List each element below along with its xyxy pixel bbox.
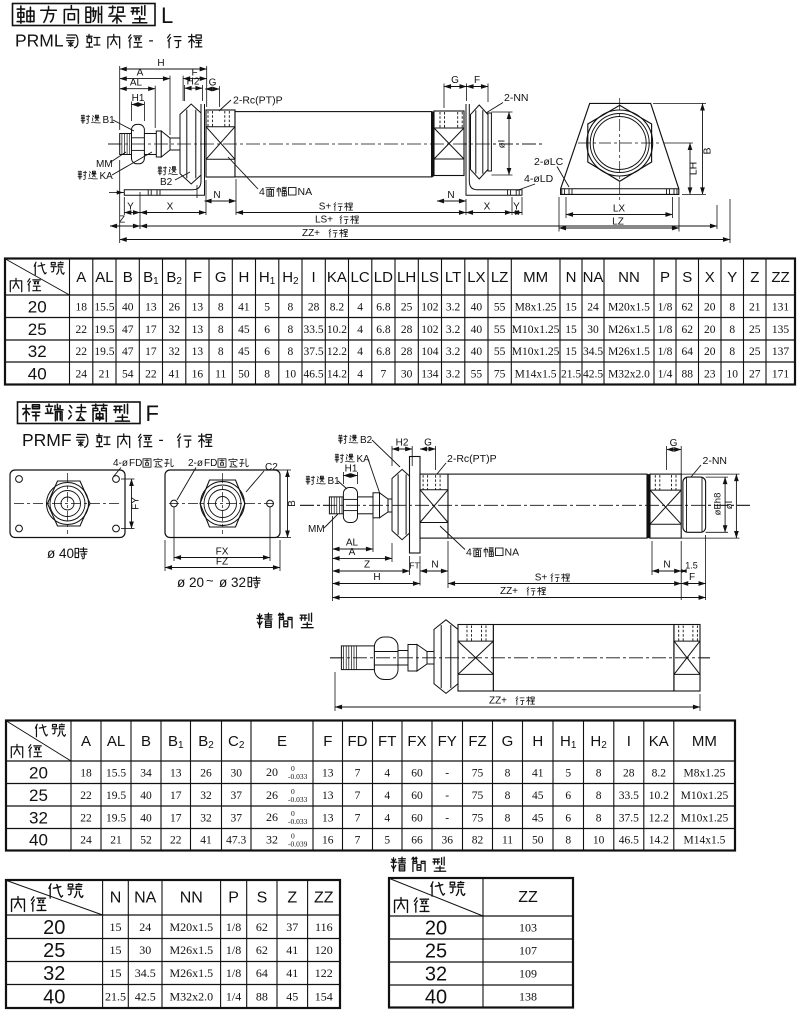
svg-text:45: 45	[532, 790, 544, 802]
svg-text:NN: NN	[618, 269, 640, 286]
svg-text:MM: MM	[96, 159, 113, 170]
svg-text:26: 26	[168, 301, 180, 313]
svg-text:M10x1.25: M10x1.25	[681, 790, 729, 802]
svg-text:G: G	[502, 733, 514, 750]
svg-text:1/8: 1/8	[226, 966, 241, 980]
svg-text:E: E	[277, 733, 287, 750]
svg-text:19.5: 19.5	[94, 346, 114, 358]
svg-text:F: F	[689, 572, 695, 583]
svg-text:62: 62	[681, 301, 693, 313]
svg-text:41: 41	[200, 835, 212, 847]
svg-text:M32x2.0: M32x2.0	[608, 368, 650, 380]
svg-text:46.5: 46.5	[304, 368, 324, 380]
svg-text:4: 4	[384, 812, 390, 824]
svg-text:24: 24	[587, 301, 599, 313]
svg-text:21: 21	[749, 301, 761, 313]
svg-text:ø 40: ø 40	[47, 546, 74, 561]
svg-text:H2: H2	[187, 77, 200, 88]
svg-text:M10x1.25: M10x1.25	[512, 346, 560, 358]
svg-text:øI: øI	[724, 501, 735, 509]
svg-text:8: 8	[596, 790, 602, 802]
svg-text:60: 60	[411, 767, 423, 779]
svg-text:40: 40	[471, 301, 483, 313]
svg-text:-: -	[445, 812, 449, 824]
svg-text:45: 45	[532, 812, 544, 824]
svg-text:A: A	[76, 269, 86, 286]
svg-text:5: 5	[264, 301, 270, 313]
svg-text:3.2: 3.2	[446, 324, 461, 336]
svg-text:22: 22	[75, 324, 87, 336]
svg-text:32: 32	[29, 808, 48, 827]
svg-text:H2: H2	[282, 269, 299, 287]
svg-text:30: 30	[401, 368, 413, 380]
svg-text:1/8: 1/8	[658, 324, 673, 336]
svg-text:H1: H1	[132, 93, 145, 104]
svg-text:19.5: 19.5	[106, 790, 126, 802]
svg-text:52: 52	[140, 835, 152, 847]
svg-text:8: 8	[288, 346, 294, 358]
svg-text:Y: Y	[513, 202, 520, 213]
svg-text:40: 40	[28, 364, 47, 383]
svg-text:12.2: 12.2	[327, 346, 347, 358]
svg-text:N: N	[663, 560, 670, 571]
svg-text:FY: FY	[438, 733, 457, 750]
svg-text:N: N	[431, 560, 438, 571]
svg-text:1/8: 1/8	[226, 943, 241, 957]
svg-text:40: 40	[43, 987, 65, 1009]
svg-text:109: 109	[519, 967, 537, 981]
svg-text:2-Rc(PT)P: 2-Rc(PT)P	[233, 95, 283, 107]
svg-text:C2: C2	[265, 462, 278, 473]
svg-text:H2: H2	[590, 733, 607, 751]
svg-text:34.5: 34.5	[135, 966, 156, 980]
svg-text:41: 41	[238, 301, 250, 313]
svg-text:28: 28	[623, 767, 635, 779]
svg-text:13: 13	[170, 767, 182, 779]
svg-text:75: 75	[472, 790, 484, 802]
svg-text:131: 131	[772, 301, 790, 313]
svg-text:MM: MM	[308, 524, 325, 535]
svg-text:88: 88	[256, 990, 268, 1004]
svg-text:6: 6	[565, 812, 571, 824]
svg-text:13: 13	[322, 790, 334, 802]
svg-text:FZ: FZ	[216, 557, 228, 568]
svg-text:8: 8	[729, 346, 735, 358]
svg-text:NA: NA	[298, 186, 313, 198]
svg-text:15: 15	[565, 301, 577, 313]
svg-text:3.2: 3.2	[446, 346, 461, 358]
svg-text:26: 26	[266, 788, 278, 802]
svg-text:Z: Z	[287, 890, 297, 907]
svg-text:8: 8	[288, 324, 294, 336]
svg-text:120: 120	[315, 943, 333, 957]
svg-text:8.2: 8.2	[330, 301, 345, 313]
svg-text:ZZ+: ZZ+	[489, 696, 507, 707]
svg-text:102: 102	[421, 324, 439, 336]
svg-text:H: H	[373, 572, 380, 583]
svg-text:ZZ+: ZZ+	[302, 228, 320, 239]
svg-text:4-øLD: 4-øLD	[524, 173, 554, 185]
svg-text:13: 13	[322, 812, 334, 824]
svg-text:138: 138	[519, 990, 537, 1004]
svg-text:20: 20	[29, 763, 48, 782]
svg-text:NN: NN	[180, 890, 203, 907]
svg-text:N: N	[566, 269, 577, 286]
svg-text:32: 32	[28, 342, 47, 361]
svg-text:4: 4	[357, 346, 363, 358]
svg-text:FT: FT	[378, 733, 396, 750]
svg-text:-: -	[158, 432, 163, 449]
svg-text:5: 5	[565, 767, 571, 779]
svg-text:22: 22	[75, 346, 87, 358]
svg-text:1/4: 1/4	[226, 990, 241, 1004]
svg-text:40: 40	[122, 301, 134, 313]
svg-text:G: G	[424, 438, 432, 449]
svg-text:B2: B2	[360, 435, 373, 446]
svg-text:15.5: 15.5	[106, 767, 126, 779]
svg-text:15: 15	[565, 346, 577, 358]
svg-text:40: 40	[425, 987, 447, 1009]
svg-text:M26x1.5: M26x1.5	[169, 943, 213, 957]
svg-text:33.5: 33.5	[619, 790, 639, 802]
svg-text:N: N	[447, 190, 454, 201]
svg-text:M26x1.5: M26x1.5	[169, 966, 213, 980]
svg-text:32: 32	[43, 963, 65, 985]
svg-text:40: 40	[140, 812, 152, 824]
svg-text:-: -	[445, 767, 449, 779]
svg-text:4: 4	[384, 790, 390, 802]
svg-text:75: 75	[472, 767, 484, 779]
svg-text:32: 32	[200, 790, 212, 802]
svg-text:45: 45	[286, 990, 298, 1004]
svg-text:2-NN: 2-NN	[504, 92, 529, 104]
svg-text:20: 20	[425, 918, 447, 940]
svg-text:ø 20: ø 20	[177, 575, 204, 590]
svg-text:55: 55	[494, 324, 506, 336]
svg-text:FD: FD	[348, 733, 368, 750]
svg-text:10: 10	[285, 368, 297, 380]
svg-text:6: 6	[264, 324, 270, 336]
svg-text:1.5: 1.5	[685, 561, 698, 571]
svg-text:45: 45	[238, 324, 250, 336]
svg-text:20: 20	[704, 346, 716, 358]
svg-text:30: 30	[139, 943, 151, 957]
svg-text:G: G	[670, 438, 678, 449]
svg-text:22: 22	[170, 835, 182, 847]
svg-text:8: 8	[264, 368, 270, 380]
svg-text:I: I	[312, 269, 316, 286]
svg-text:5: 5	[384, 835, 390, 847]
svg-text:ZZ: ZZ	[314, 890, 334, 907]
svg-text:-: -	[445, 790, 449, 802]
svg-text:M20x1.5: M20x1.5	[608, 301, 650, 313]
svg-text:MM: MM	[692, 733, 717, 750]
svg-text:25: 25	[425, 941, 447, 963]
svg-text:B: B	[287, 500, 298, 507]
svg-text:75: 75	[494, 368, 506, 380]
svg-text:47: 47	[122, 324, 134, 336]
svg-text:4: 4	[357, 368, 363, 380]
svg-text:KA: KA	[327, 269, 347, 286]
svg-text:M14x1.5: M14x1.5	[515, 368, 557, 380]
svg-text:6: 6	[264, 346, 270, 358]
svg-text:21.5: 21.5	[105, 990, 126, 1004]
svg-text:7: 7	[355, 767, 361, 779]
svg-text:7: 7	[355, 790, 361, 802]
svg-text:LT: LT	[445, 269, 461, 286]
svg-text:8: 8	[505, 767, 511, 779]
svg-text:13: 13	[192, 324, 204, 336]
svg-text:60: 60	[411, 790, 423, 802]
svg-text:N: N	[110, 890, 122, 907]
svg-text:LC: LC	[351, 269, 370, 286]
svg-text:46.5: 46.5	[619, 835, 639, 847]
svg-text:50: 50	[532, 835, 544, 847]
svg-text:37.5: 37.5	[304, 346, 324, 358]
svg-text:40: 40	[471, 324, 483, 336]
svg-text:116: 116	[315, 920, 333, 934]
svg-text:24: 24	[80, 835, 92, 847]
svg-text:37: 37	[230, 812, 242, 824]
svg-text:41: 41	[532, 767, 544, 779]
svg-text:8: 8	[596, 812, 602, 824]
svg-text:M10x1.25: M10x1.25	[681, 812, 729, 824]
svg-text:6.8: 6.8	[376, 346, 391, 358]
svg-text:154: 154	[315, 990, 333, 1004]
svg-text:137: 137	[772, 346, 790, 358]
svg-text:B2: B2	[166, 269, 182, 287]
svg-text:3.2: 3.2	[446, 301, 461, 313]
svg-text:F: F	[193, 269, 202, 286]
svg-text:17: 17	[145, 324, 157, 336]
svg-text:66: 66	[411, 835, 423, 847]
svg-text:64: 64	[256, 966, 268, 980]
svg-text:6.8: 6.8	[376, 301, 391, 313]
svg-text:25: 25	[749, 346, 761, 358]
svg-text:104: 104	[421, 346, 439, 358]
svg-text:8: 8	[505, 790, 511, 802]
svg-text:X: X	[705, 269, 715, 286]
svg-text:NA: NA	[583, 269, 604, 286]
svg-text:50: 50	[238, 368, 250, 380]
svg-text:S+: S+	[319, 202, 332, 213]
svg-text:LX: LX	[467, 269, 485, 286]
svg-text:2-NN: 2-NN	[703, 455, 728, 467]
svg-text:KA: KA	[649, 733, 669, 750]
svg-text:22: 22	[145, 368, 157, 380]
svg-text:G: G	[215, 269, 227, 286]
svg-text:82: 82	[472, 835, 484, 847]
svg-text:M8x1.25: M8x1.25	[515, 301, 557, 313]
svg-text:LH: LH	[397, 269, 416, 286]
svg-text:8: 8	[218, 346, 224, 358]
svg-text:103: 103	[519, 921, 537, 935]
svg-text:M26x1.5: M26x1.5	[608, 346, 650, 358]
svg-text:15: 15	[565, 324, 577, 336]
svg-text:10: 10	[726, 368, 738, 380]
svg-text:FX: FX	[407, 733, 426, 750]
svg-text:17: 17	[170, 790, 182, 802]
svg-text:F: F	[474, 75, 480, 86]
svg-text:34.5: 34.5	[583, 346, 603, 358]
svg-text:øEh8: øEh8	[713, 493, 724, 516]
svg-text:55: 55	[471, 368, 483, 380]
svg-text:42.5: 42.5	[583, 368, 603, 380]
svg-text:37: 37	[286, 920, 298, 934]
svg-text:X: X	[484, 202, 491, 213]
svg-text:8: 8	[596, 767, 602, 779]
svg-text:S: S	[682, 269, 692, 286]
svg-text:64: 64	[681, 346, 693, 358]
svg-text:23: 23	[704, 368, 716, 380]
svg-text:KA: KA	[100, 171, 114, 182]
svg-text:40: 40	[471, 346, 483, 358]
svg-text:M8x1.25: M8x1.25	[683, 767, 725, 779]
svg-text:Z: Z	[750, 269, 759, 286]
svg-text:12.2: 12.2	[649, 812, 669, 824]
svg-text:PRMF: PRMF	[22, 430, 72, 450]
svg-text:M32x2.0: M32x2.0	[169, 990, 213, 1004]
svg-text:B2: B2	[198, 733, 214, 751]
svg-text:M20x1.5: M20x1.5	[169, 920, 213, 934]
svg-text:H1: H1	[259, 269, 276, 287]
svg-text:6.8: 6.8	[376, 324, 391, 336]
svg-text:54: 54	[122, 368, 134, 380]
svg-text:11: 11	[502, 835, 513, 847]
svg-text:LD: LD	[374, 269, 393, 286]
svg-text:13: 13	[192, 346, 204, 358]
svg-text:1/4: 1/4	[658, 368, 673, 380]
svg-text:8: 8	[218, 324, 224, 336]
svg-text:4: 4	[384, 767, 390, 779]
svg-text:N: N	[213, 190, 220, 201]
svg-text:25: 25	[29, 786, 48, 805]
svg-text:10: 10	[593, 835, 605, 847]
svg-text:15: 15	[110, 966, 122, 980]
svg-text:F: F	[323, 733, 332, 750]
svg-text:8: 8	[729, 324, 735, 336]
svg-text:G: G	[451, 75, 459, 86]
svg-text:B: B	[123, 269, 133, 286]
svg-text:18: 18	[80, 767, 92, 779]
svg-text:1/8: 1/8	[658, 346, 673, 358]
svg-text:2-ø: 2-ø	[188, 458, 203, 469]
svg-text:ø 32: ø 32	[219, 575, 246, 590]
svg-text:B1: B1	[143, 269, 159, 287]
svg-text:17: 17	[170, 812, 182, 824]
svg-text:36: 36	[441, 835, 453, 847]
svg-text:22: 22	[80, 790, 92, 802]
svg-text:171: 171	[772, 368, 790, 380]
svg-text:FY: FY	[131, 497, 142, 510]
svg-text:62: 62	[681, 324, 693, 336]
svg-text:16: 16	[192, 368, 204, 380]
svg-text:2-Rc(PT)P: 2-Rc(PT)P	[447, 453, 497, 465]
svg-text:135: 135	[772, 324, 790, 336]
svg-text:20: 20	[704, 301, 716, 313]
svg-text:75: 75	[472, 812, 484, 824]
svg-text:-0.033: -0.033	[288, 772, 308, 781]
svg-text:11: 11	[215, 368, 226, 380]
svg-text:40: 40	[140, 790, 152, 802]
svg-text:41: 41	[168, 368, 180, 380]
svg-text:LX: LX	[613, 204, 626, 215]
svg-text:21: 21	[110, 835, 122, 847]
svg-text:7: 7	[381, 368, 387, 380]
svg-text:28: 28	[401, 324, 413, 336]
svg-text:55: 55	[494, 301, 506, 313]
svg-text:16: 16	[322, 835, 334, 847]
svg-text:24: 24	[139, 920, 151, 934]
svg-text:8: 8	[505, 812, 511, 824]
svg-text:17: 17	[145, 346, 157, 358]
svg-text:122: 122	[315, 966, 333, 980]
svg-text:PRML: PRML	[15, 31, 64, 51]
svg-text:19.5: 19.5	[94, 324, 114, 336]
svg-text:C2: C2	[228, 733, 245, 751]
svg-text:34: 34	[140, 767, 152, 779]
svg-text:32: 32	[266, 833, 278, 847]
svg-text:AL: AL	[130, 78, 143, 89]
svg-text:P: P	[228, 890, 239, 907]
svg-text:-0.039: -0.039	[288, 840, 308, 849]
svg-text:20: 20	[266, 765, 278, 779]
svg-text:-0.033: -0.033	[288, 795, 308, 804]
svg-text:28: 28	[308, 301, 320, 313]
svg-text:S: S	[257, 890, 268, 907]
svg-text:25: 25	[43, 940, 65, 962]
svg-text:15: 15	[110, 943, 122, 957]
svg-text:Z: Z	[119, 215, 125, 226]
svg-text:15.5: 15.5	[94, 301, 114, 313]
svg-text:41: 41	[286, 966, 298, 980]
svg-text:10.2: 10.2	[327, 324, 347, 336]
svg-text:60: 60	[411, 812, 423, 824]
svg-text:13: 13	[322, 767, 334, 779]
svg-text:42.5: 42.5	[135, 990, 156, 1004]
svg-text:37.5: 37.5	[619, 812, 639, 824]
svg-text:Y: Y	[727, 269, 737, 286]
svg-text:88: 88	[681, 368, 693, 380]
svg-text:32: 32	[168, 346, 180, 358]
svg-text:40: 40	[29, 831, 48, 850]
svg-text:H: H	[238, 269, 249, 286]
svg-text:B2: B2	[160, 177, 173, 188]
svg-text:13: 13	[145, 301, 157, 313]
svg-text:32: 32	[168, 324, 180, 336]
svg-text:S+: S+	[535, 573, 548, 584]
svg-text:M10x1.25: M10x1.25	[512, 324, 560, 336]
svg-text:28: 28	[401, 346, 413, 358]
svg-text:20: 20	[28, 297, 47, 316]
svg-text:B: B	[702, 147, 714, 154]
svg-text:H: H	[532, 733, 543, 750]
svg-text:FD: FD	[204, 458, 217, 469]
svg-text:F: F	[146, 401, 159, 426]
svg-text:25: 25	[28, 320, 47, 339]
svg-text:M14x1.5: M14x1.5	[683, 835, 725, 847]
svg-text:134: 134	[421, 368, 439, 380]
svg-text:3.2: 3.2	[446, 368, 461, 380]
svg-text:H2: H2	[396, 438, 409, 449]
svg-text:ZZ+: ZZ+	[500, 586, 518, 597]
svg-text:32: 32	[200, 812, 212, 824]
svg-text:8.2: 8.2	[652, 767, 667, 779]
svg-text:1/8: 1/8	[226, 920, 241, 934]
svg-text:27: 27	[749, 368, 761, 380]
svg-text:33.5: 33.5	[304, 324, 324, 336]
svg-text:14.2: 14.2	[327, 368, 347, 380]
